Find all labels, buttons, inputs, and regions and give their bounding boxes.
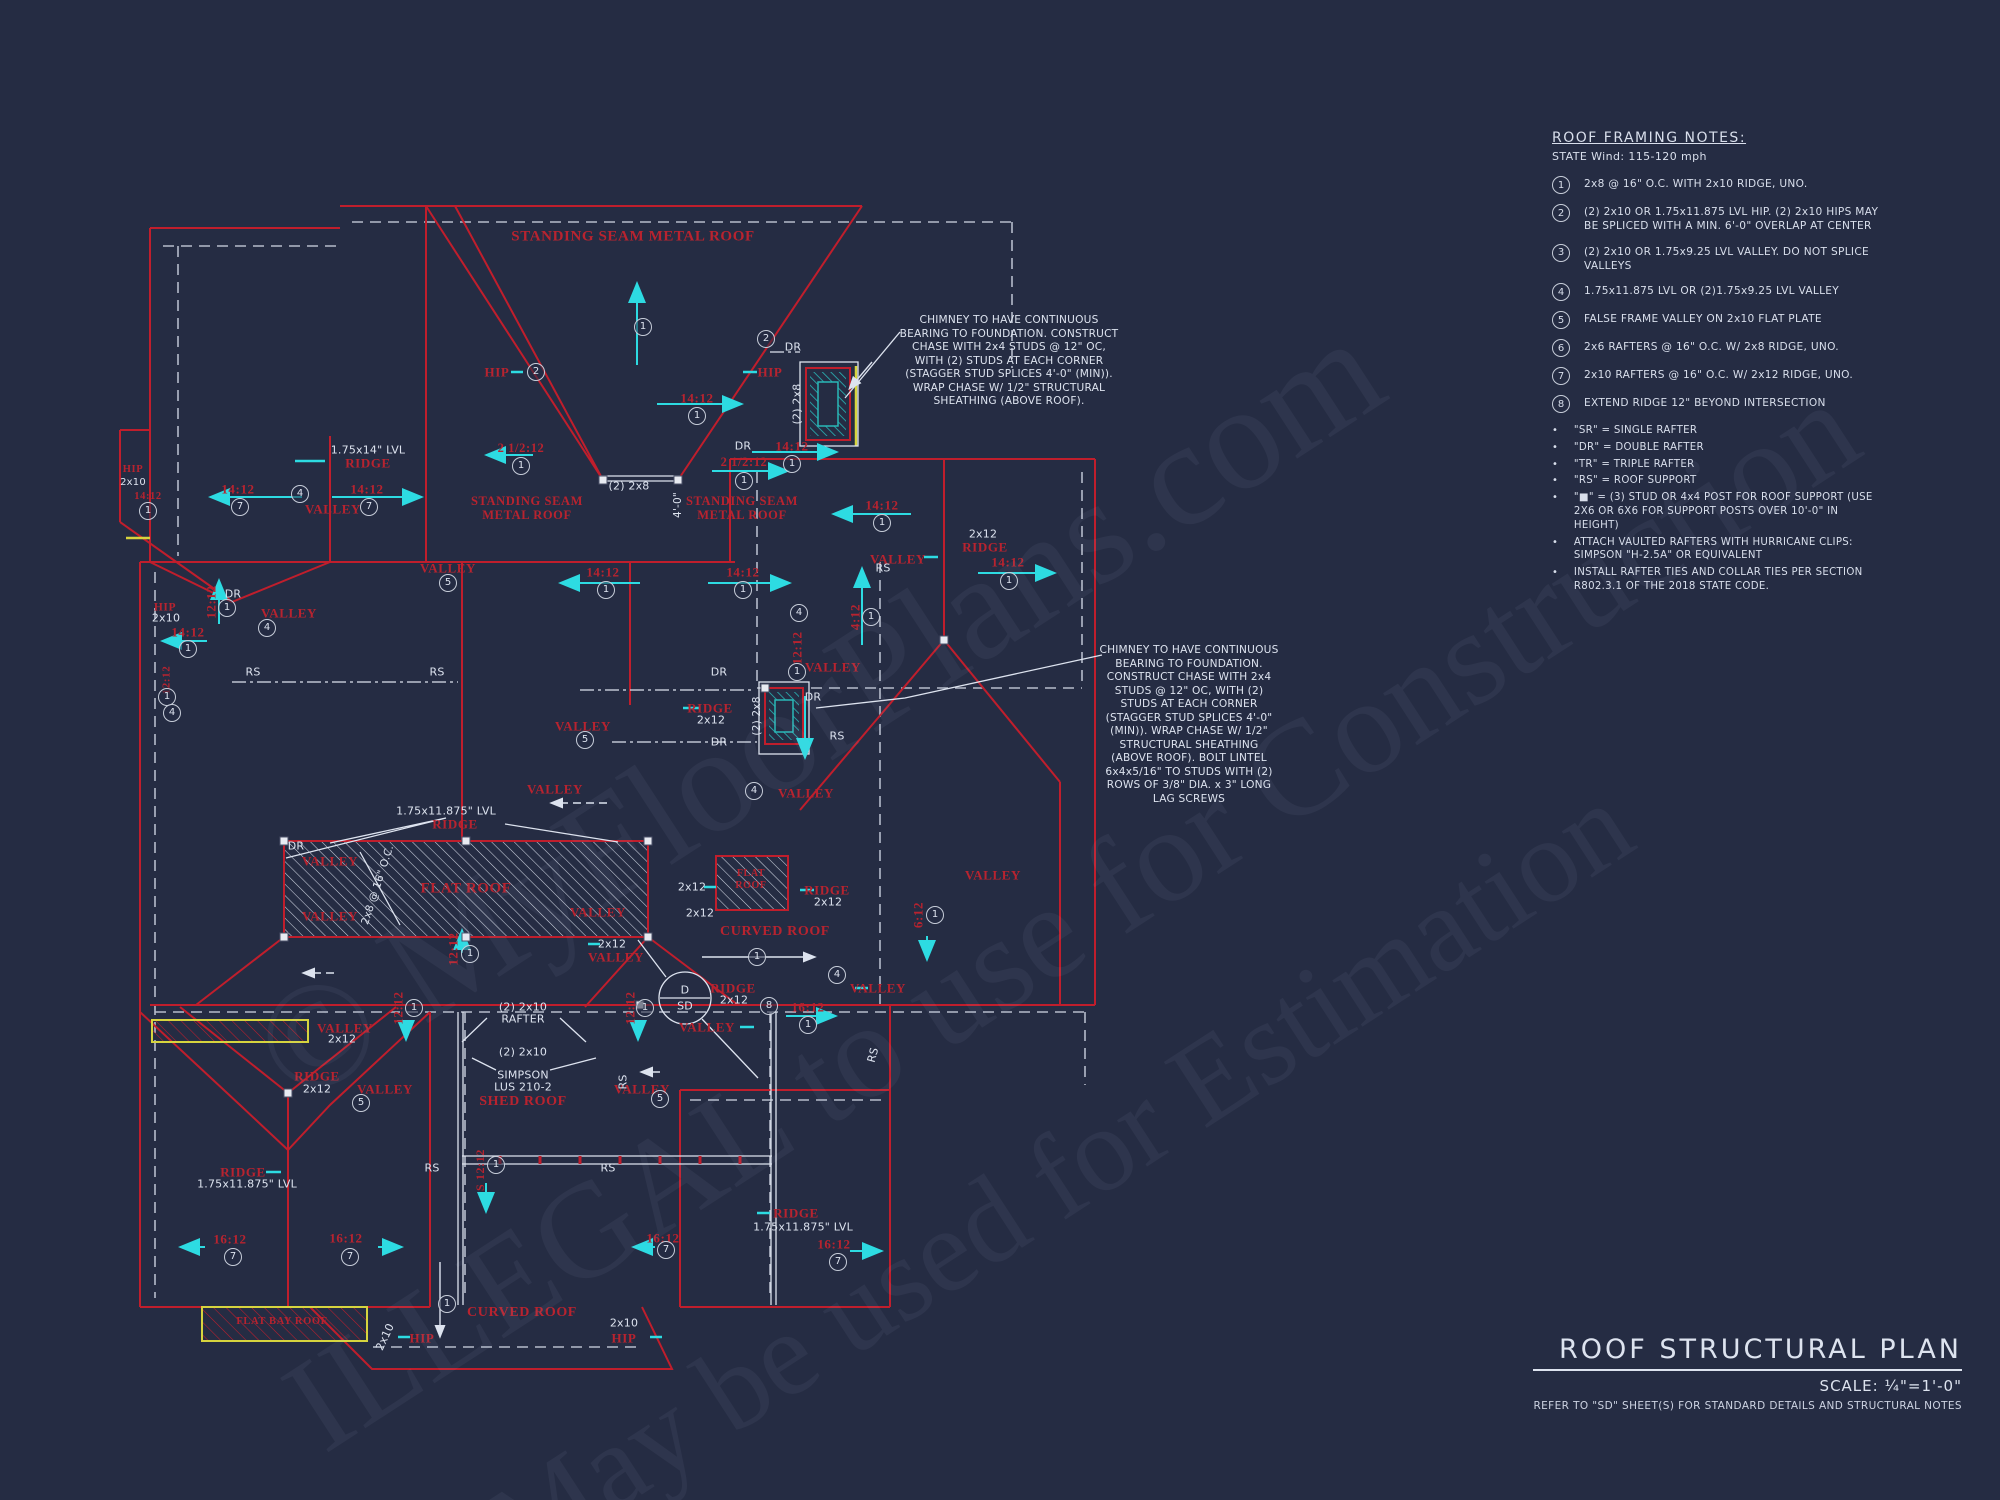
note-ref-circle: 1 [873, 514, 891, 532]
note-ref-circle: 1 [748, 948, 766, 966]
plan-label: HIP [410, 1332, 435, 1345]
plan-label: RS [600, 1163, 615, 1174]
note-ref-circle: 7 [341, 1248, 359, 1266]
note-ref-circle: 1 [438, 1295, 456, 1313]
plan-label: RAFTER [501, 1014, 544, 1025]
plan-label: 14:12 [586, 566, 619, 579]
plan-label: 16:12 [817, 1238, 850, 1251]
plan-label: 14:12 [775, 440, 808, 453]
plan-label: 1.75x11.875" LVL [396, 806, 496, 817]
plan-label: DR [805, 692, 822, 703]
note-ref-circle: 4 [828, 966, 846, 984]
note-ref-circle: 1 [783, 455, 801, 473]
note-ref-circle: 7 [657, 1241, 675, 1259]
bullet-dot: • [1552, 492, 1558, 503]
plan-label: DR [735, 441, 752, 452]
plan-label: FLAT [737, 869, 765, 879]
note-ref-circle: 1 [734, 581, 752, 599]
note-ref-circle: 1 [636, 999, 654, 1017]
plan-label: 4:12 [849, 604, 862, 630]
plan-label: 12:12 [205, 585, 218, 618]
notes-wind-subtitle: STATE Wind: 115-120 mph [1552, 150, 1924, 163]
plan-label: CURVED ROOF [467, 1306, 577, 1320]
note-ref-circle: 1 [799, 1016, 817, 1034]
plan-label: 1.75x11.875" LVL [197, 1179, 297, 1190]
note-text: EXTEND RIDGE 12" BEYOND INTERSECTION [1584, 396, 1826, 410]
plan-label: 2x12 [697, 715, 725, 726]
plan-label: HIP [123, 465, 143, 476]
plan-label: RIDGE [432, 818, 478, 831]
note-ref-circle: 4 [790, 604, 808, 622]
plan-label: VALLEY [805, 661, 861, 674]
plan-label: VALLEY [850, 982, 906, 995]
note-ref-circle: 1 [1000, 572, 1018, 590]
framing-note-item: 8EXTEND RIDGE 12" BEYOND INTERSECTION [1552, 396, 1924, 413]
plan-label: SHED ROOF [479, 1095, 566, 1109]
note-ref-circle: 4 [258, 619, 276, 637]
framing-note-bullet: •ATTACH VAULTED RAFTERS WITH HURRICANE C… [1552, 536, 1924, 564]
note-ref-circle: 4 [745, 782, 763, 800]
note-ref-circle: 1 [461, 945, 479, 963]
framing-note-item: 5FALSE FRAME VALLEY ON 2x10 FLAT PLATE [1552, 312, 1924, 329]
note-ref-circle: 5 [651, 1090, 669, 1108]
plan-label: 14:12 [221, 483, 254, 496]
plan-label: 12:12 [392, 991, 405, 1024]
plan-label: VALLEY [305, 503, 361, 516]
note-ref-circle: 1 [405, 999, 423, 1017]
note-ref-circle: 5 [352, 1094, 370, 1112]
plan-label: 2x10 [374, 1322, 396, 1352]
plan-label: 2x12 [814, 897, 842, 908]
note-ref-circle: 1 [597, 581, 615, 599]
plan-label: 14:12 [350, 483, 383, 496]
blueprint-sheet: STANDING SEAM METAL ROOFSTANDING SEAMMET… [0, 0, 2000, 1500]
plan-label: VALLEY [302, 855, 358, 868]
plan-label: 1.75x11.875" LVL [753, 1222, 853, 1233]
plan-label: VALLEY [679, 1021, 735, 1034]
plan-label: STANDING SEAM [471, 495, 583, 508]
framing-note-item: 12x8 @ 16" O.C. WITH 2x10 RIDGE, UNO. [1552, 177, 1924, 194]
plan-label: FLAT ROOF [420, 882, 511, 897]
plan-label: ROOF [735, 881, 766, 891]
plan-label: 2x12 [303, 1084, 331, 1095]
note-ref-circle: 4 [291, 485, 309, 503]
note-number-circle: 8 [1552, 395, 1570, 413]
plan-label: RIDGE [345, 457, 391, 470]
plan-label: VALLEY [527, 783, 583, 796]
note-ref-circle: 7 [224, 1248, 242, 1266]
framing-note-bullet: •"DR" = DOUBLE RAFTER [1552, 441, 1924, 455]
plan-label: DR [288, 841, 305, 852]
note-ref-circle: 1 [218, 599, 236, 617]
plan-label: STANDING SEAM METAL ROOF [511, 230, 754, 245]
framing-note-bullet: •"TR" = TRIPLE RAFTER [1552, 458, 1924, 472]
roof-framing-notes: ROOF FRAMING NOTES: STATE Wind: 115-120 … [1552, 130, 1924, 597]
plan-label: RIDGE [962, 541, 1008, 554]
plan-label: 14:12 [991, 556, 1024, 569]
plan-label: VALLEY [965, 869, 1021, 882]
plan-label: DR [711, 737, 728, 748]
note-text: FALSE FRAME VALLEY ON 2x10 FLAT PLATE [1584, 312, 1822, 326]
plan-label: DR [711, 667, 728, 678]
plan-label: 2x10 [120, 478, 146, 488]
sheet-title: ROOF STRUCTURAL PLAN [1533, 1334, 1962, 1371]
framing-note-bullet: •INSTALL RAFTER TIES AND COLLAR TIES PER… [1552, 566, 1924, 594]
plan-label: (2) 2x10 [499, 1047, 547, 1058]
plan-label: RS [618, 1074, 629, 1089]
plan-label: 14:12 [134, 492, 162, 503]
plan-label: RS [424, 1163, 439, 1174]
note-ref-circle: 2 [527, 363, 545, 381]
plan-label: HIP [485, 366, 510, 379]
plan-label: RS [829, 731, 844, 742]
plan-label: (2) 2x10 [499, 1002, 547, 1013]
note-ref-circle: 7 [360, 498, 378, 516]
note-ref-circle: 1 [788, 663, 806, 681]
plan-label: 2 1/2:12 [721, 456, 768, 469]
plan-label: DR [225, 589, 242, 600]
plan-label: HIP [612, 1332, 637, 1345]
plan-label: RIDGE [773, 1207, 819, 1220]
framing-note-item: 72x10 RAFTERS @ 16" O.C. W/ 2x12 RIDGE, … [1552, 368, 1924, 385]
bullet-dot: • [1552, 567, 1558, 578]
note-ref-circle: 5 [576, 731, 594, 749]
note-ref-circle: 5 [439, 574, 457, 592]
bullet-dot: • [1552, 537, 1558, 548]
note-text: 1.75x11.875 LVL OR (2)1.75x9.25 LVL VALL… [1584, 284, 1839, 298]
plan-label: 2x8 @ 16" O.C. [360, 844, 396, 926]
chimney-callout-top: CHIMNEY TO HAVE CONTINUOUS BEARING TO FO… [898, 314, 1120, 409]
plan-label: 2x12 [678, 882, 706, 893]
bullet-dot: • [1552, 425, 1558, 436]
plan-label: METAL ROOF [697, 509, 786, 522]
plan-label: 2 1/2:12 [498, 442, 545, 455]
note-number-circle: 5 [1552, 311, 1570, 329]
framing-note-item: 41.75x11.875 LVL OR (2)1.75x9.25 LVL VAL… [1552, 284, 1924, 301]
plan-label: 14:12 [726, 566, 759, 579]
plan-label: 2x10 [152, 613, 180, 624]
note-number-circle: 2 [1552, 204, 1570, 222]
note-ref-circle: 1 [688, 407, 706, 425]
plan-label: RS [875, 563, 890, 574]
framing-note-item: 62x6 RAFTERS @ 16" O.C. W/ 2x8 RIDGE, UN… [1552, 340, 1924, 357]
note-text: "■" = (3) STUD OR 4x4 POST FOR ROOF SUPP… [1574, 491, 1874, 532]
note-number-circle: 1 [1552, 176, 1570, 194]
plan-label: VALLEY [302, 910, 358, 923]
plan-label: LUS 210-2 [494, 1082, 552, 1093]
note-ref-circle: 1 [179, 640, 197, 658]
plan-label: 1.75x14" LVL [331, 445, 406, 456]
note-number-circle: 6 [1552, 339, 1570, 357]
plan-label: 2x12 [328, 1034, 356, 1045]
plan-label: VALLEY [778, 787, 834, 800]
plan-label: 16:12 [213, 1233, 246, 1246]
note-ref-circle: 1 [139, 502, 157, 520]
plan-label: 12:12 [624, 991, 637, 1024]
note-text: 2x10 RAFTERS @ 16" O.C. W/ 2x12 RIDGE, U… [1584, 368, 1853, 382]
notes-numbered-list: 12x8 @ 16" O.C. WITH 2x10 RIDGE, UNO.2(2… [1552, 177, 1924, 413]
note-text: 2x6 RAFTERS @ 16" O.C. W/ 2x8 RIDGE, UNO… [1584, 340, 1839, 354]
plan-label: 4'-0" [673, 492, 684, 518]
framing-note-bullet: •"RS" = ROOF SUPPORT [1552, 474, 1924, 488]
plan-label: VALLEY [420, 562, 476, 575]
plan-label: SD [677, 1001, 693, 1012]
plan-label: 14:12 [171, 626, 204, 639]
note-text: "SR" = SINGLE RAFTER [1574, 424, 1697, 438]
framing-note-item: 2(2) 2x10 OR 1.75x11.875 LVL HIP. (2) 2x… [1552, 205, 1924, 234]
framing-note-bullet: •"■" = (3) STUD OR 4x4 POST FOR ROOF SUP… [1552, 491, 1924, 532]
note-ref-circle: 7 [829, 1253, 847, 1271]
note-text: "RS" = ROOF SUPPORT [1574, 474, 1697, 488]
note-text: "DR" = DOUBLE RAFTER [1574, 441, 1704, 455]
note-ref-circle: 4 [163, 704, 181, 722]
plan-label: 2x12 [969, 529, 997, 540]
note-ref-circle: 8 [760, 997, 778, 1015]
plan-label: D [681, 985, 690, 996]
plan-label: DR [785, 342, 802, 353]
plan-label: (2) 2x8 [609, 481, 650, 492]
sheet-scale: SCALE: ¼"=1'-0" [1533, 1377, 1962, 1395]
plan-label: 14:12 [865, 499, 898, 512]
plan-label: VALLEY [261, 607, 317, 620]
plan-label: RS [429, 667, 444, 678]
plan-label: SIMPSON [497, 1070, 549, 1081]
plan-label: 2x12 [686, 908, 714, 919]
plan-label: FLAT BAY ROOF [236, 1317, 327, 1328]
plan-label: S 12:12 [474, 1149, 486, 1191]
chimney-callout-mid: CHIMNEY TO HAVE CONTINUOUS BEARING TO FO… [1098, 644, 1280, 807]
note-ref-circle: 1 [926, 906, 944, 924]
note-text: 2x8 @ 16" O.C. WITH 2x10 RIDGE, UNO. [1584, 177, 1808, 191]
plan-label: STANDING SEAM [686, 495, 798, 508]
bullet-dot: • [1552, 475, 1558, 486]
plan-label: RIDGE [294, 1070, 340, 1083]
bullet-dot: • [1552, 459, 1558, 470]
plan-label: 12:12 [447, 932, 460, 965]
note-ref-circle: 1 [512, 457, 530, 475]
plan-label: VALLEY [357, 1083, 413, 1096]
plan-label: VALLEY [570, 906, 626, 919]
plan-label: 16:12 [791, 1001, 824, 1014]
note-text: (2) 2x10 OR 1.75x11.875 LVL HIP. (2) 2x1… [1584, 205, 1884, 234]
title-block: ROOF STRUCTURAL PLAN SCALE: ¼"=1'-0" REF… [1533, 1334, 1962, 1412]
plan-label: (2) 2x8 [752, 696, 763, 735]
plan-label: 16:12 [329, 1232, 362, 1245]
notes-title: ROOF FRAMING NOTES: [1552, 130, 1924, 146]
note-ref-circle: 2 [757, 330, 775, 348]
note-ref-circle: 1 [862, 608, 880, 626]
plan-label: CURVED ROOF [720, 925, 830, 939]
plan-label: 2x12 [720, 995, 748, 1006]
note-ref-circle: 1 [487, 1156, 505, 1174]
plan-label: 2x10 [610, 1318, 638, 1329]
framing-note-item: 3(2) 2x10 OR 1.75x9.25 LVL VALLEY. DO NO… [1552, 245, 1924, 274]
bullet-dot: • [1552, 442, 1558, 453]
note-ref-circle: 1 [634, 318, 652, 336]
plan-label: RS [866, 1046, 881, 1063]
note-number-circle: 7 [1552, 367, 1570, 385]
note-text: "TR" = TRIPLE RAFTER [1574, 458, 1695, 472]
plan-label: 2x12 [598, 939, 626, 950]
plan-label: VALLEY [588, 951, 644, 964]
plan-label: RS [245, 667, 260, 678]
sheet-reference-note: REFER TO "SD" SHEET(S) FOR STANDARD DETA… [1533, 1400, 1962, 1412]
plan-label: 14:12 [680, 392, 713, 405]
plan-label: HIP [758, 366, 783, 379]
note-number-circle: 3 [1552, 244, 1570, 262]
notes-bullet-list: •"SR" = SINGLE RAFTER•"DR" = DOUBLE RAFT… [1552, 424, 1924, 593]
note-ref-circle: 7 [231, 498, 249, 516]
framing-note-bullet: •"SR" = SINGLE RAFTER [1552, 424, 1924, 438]
note-number-circle: 4 [1552, 283, 1570, 301]
plan-label: METAL ROOF [482, 509, 571, 522]
note-text: ATTACH VAULTED RAFTERS WITH HURRICANE CL… [1574, 536, 1874, 564]
note-ref-circle: 1 [735, 472, 753, 490]
plan-label: (2) 2x8 [792, 384, 803, 425]
plan-label: 6:12 [912, 902, 925, 928]
note-text: (2) 2x10 OR 1.75x9.25 LVL VALLEY. DO NOT… [1584, 245, 1884, 274]
plan-label: 12:12 [791, 631, 804, 664]
note-text: INSTALL RAFTER TIES AND COLLAR TIES PER … [1574, 566, 1874, 594]
